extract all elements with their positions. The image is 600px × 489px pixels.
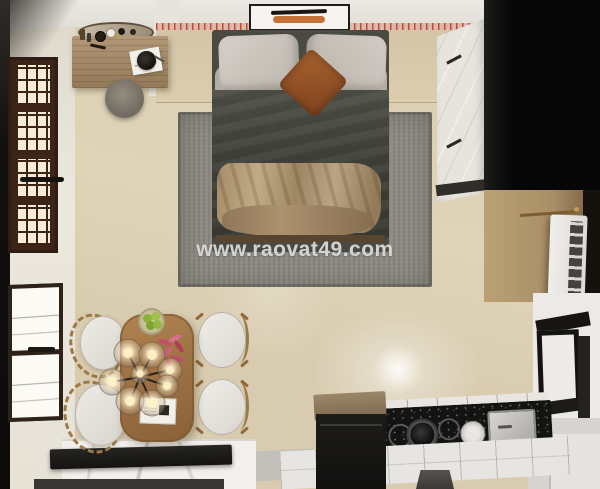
small-stool <box>416 470 454 489</box>
window-glass-bottom <box>12 354 59 418</box>
stool <box>105 79 144 118</box>
burner-ring <box>437 418 460 441</box>
artwork <box>249 4 350 31</box>
chair-peg <box>195 379 204 387</box>
perfume-bottle <box>80 29 85 40</box>
artwork-black-stroke <box>271 9 327 15</box>
cosmetic-jar <box>95 31 106 42</box>
ac-vent-grille <box>568 221 584 299</box>
chair-seat <box>198 379 246 435</box>
chair-seat <box>198 312 246 368</box>
perfume-bottle <box>87 33 91 42</box>
blanket-flap <box>222 205 372 237</box>
wardrobe <box>437 18 487 203</box>
dark-unit <box>484 0 600 192</box>
artwork-orange-stroke <box>273 16 325 23</box>
rail-knob <box>574 207 579 212</box>
faucet <box>498 425 512 429</box>
mirror-reflection-item <box>130 29 136 35</box>
door-handle <box>20 177 64 182</box>
room-render: www.raovat49.com <box>0 0 600 489</box>
chair-peg <box>195 359 204 367</box>
floor-glow-spot <box>372 345 424 393</box>
green-apple <box>153 320 162 329</box>
door-pane-grid <box>15 204 51 246</box>
chair-peg <box>195 426 204 434</box>
cabinet-handle-line <box>320 424 382 426</box>
island-under-shadow <box>34 479 224 489</box>
window-glass-top <box>12 287 59 351</box>
door-pane-grid <box>15 111 51 153</box>
kitchen-cabinet-black <box>316 414 386 489</box>
gold-jar <box>115 33 120 38</box>
chandelier <box>96 336 188 418</box>
window-handle <box>28 347 55 352</box>
door <box>8 57 58 253</box>
window <box>8 283 63 422</box>
fruit-bowl <box>138 308 165 335</box>
door-pane-grid <box>15 64 51 106</box>
watermark: www.raovat49.com <box>160 238 430 262</box>
hat <box>137 51 156 70</box>
bed <box>212 30 389 252</box>
chair-peg <box>195 312 204 320</box>
